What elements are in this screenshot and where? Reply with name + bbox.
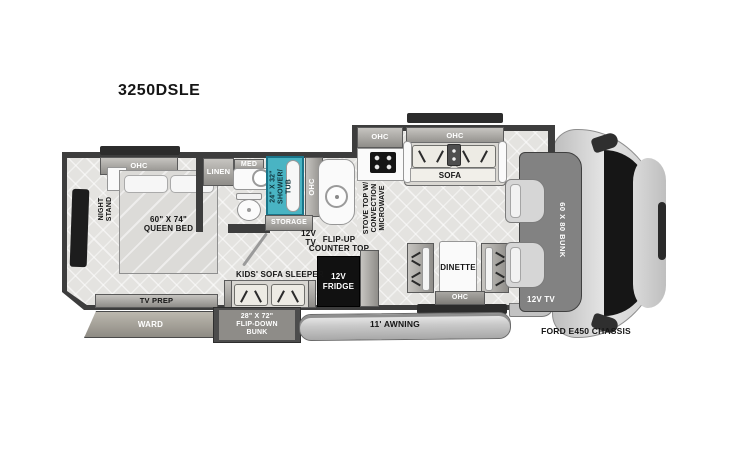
shower-label: 24" X 32" SHOWER/ TUB <box>270 159 297 215</box>
toilet-bowl-icon <box>237 199 261 221</box>
fridge: 12V FRIDGE <box>317 256 360 307</box>
seatbelt-icon <box>495 260 505 267</box>
sofa-slide-topper <box>407 113 503 123</box>
bath-bottom-wall <box>228 224 270 233</box>
sofa-label: SOFA <box>426 171 474 180</box>
seatbelt-icon <box>411 260 421 267</box>
flip-down-bunk-panel: 28" X 72" FLIP-DOWN BUNK <box>219 310 295 340</box>
seatbelt-icon <box>436 150 444 162</box>
ward-cabinet: WARD <box>84 311 217 338</box>
pillow-left <box>124 175 168 193</box>
dinette-bench-left <box>407 243 434 293</box>
linen-label: LINEN <box>207 168 231 177</box>
cabover-bunk <box>519 152 582 312</box>
seatbelt-icon <box>411 272 421 279</box>
seat-back <box>510 184 521 218</box>
dinette-ohc: OHC <box>435 291 485 305</box>
seatbelt-icon <box>277 290 285 302</box>
kids-sofa-armrest-right <box>308 280 316 308</box>
bedroom-bath-wall <box>196 152 203 232</box>
floorplan-canvas: 3250DSLE OHC NIGHT STAND 60" X 74" QUEEN… <box>0 0 731 469</box>
kitchen-faucet <box>335 195 339 199</box>
flip-down-bunk-label: 28" X 72" FLIP-DOWN BUNK <box>236 313 277 336</box>
storage-label: STORAGE <box>271 219 307 227</box>
driver-seat <box>505 179 545 223</box>
seatbelt-icon <box>495 272 505 279</box>
sofa-ohc-label: OHC <box>446 132 463 141</box>
bench-pad <box>422 247 430 291</box>
bench-pad <box>485 247 493 291</box>
dinette-ohc-label: OHC <box>452 294 468 302</box>
toilet-drain <box>247 208 251 212</box>
kitchen-ohc: OHC <box>357 127 403 148</box>
kitchen-ohc-label: OHC <box>371 133 388 142</box>
kids-sofa-armrest-left <box>224 280 232 308</box>
seatbelt-icon <box>411 280 421 287</box>
sofa-armrest-right <box>498 141 507 183</box>
cabover-bunk-label: 60 X 80 BUNK <box>554 191 566 269</box>
kids-sofa-cushion-left <box>234 284 268 306</box>
seatbelt-icon <box>411 252 421 259</box>
chassis-label: FORD E450 CHASSIS <box>536 327 636 337</box>
flip-down-bunk-box: 28" X 72" FLIP-DOWN BUNK <box>213 307 301 343</box>
bedroom-tv-icon <box>70 189 90 268</box>
seatbelt-icon <box>291 290 299 302</box>
stove-icon <box>370 152 396 173</box>
night-stand-label: NIGHT STAND <box>98 187 118 231</box>
seat-back <box>510 247 521 283</box>
bedroom-slide-topper <box>100 146 180 155</box>
fridge-cabinet <box>360 250 379 307</box>
ward-label: WARD <box>138 320 163 329</box>
seatbelt-icon <box>462 150 470 162</box>
dinette-label: DINETTE <box>434 263 482 272</box>
seatbelt-icon <box>495 280 505 287</box>
kitchen-sink-icon <box>325 185 348 208</box>
seatbelt-icon <box>254 290 262 302</box>
sofa-cushion-right <box>456 145 496 168</box>
kids-sofa-cushion-right <box>271 284 305 306</box>
cab-tv-label: 12V TV <box>521 295 561 304</box>
linen-closet: LINEN <box>203 158 234 186</box>
sofa-cushion-left <box>412 145 452 168</box>
passenger-seat <box>505 242 545 288</box>
seatbelt-icon <box>495 252 505 259</box>
awning-label: 11' AWNING <box>345 320 445 330</box>
kids-sofa-label: KIDS' SOFA SLEEPER <box>222 270 338 279</box>
tv-prep-cabinet: TV PREP <box>95 294 218 308</box>
stove-label: STOVE TOP W/ CONVECTION MICROWAVE <box>363 177 391 239</box>
sofa-console-buckle-icon <box>447 144 461 166</box>
seatbelt-icon <box>480 150 488 162</box>
seatbelt-icon <box>418 150 426 162</box>
tv-prep-label: TV PREP <box>140 297 174 306</box>
seatbelt-icon <box>240 290 248 302</box>
